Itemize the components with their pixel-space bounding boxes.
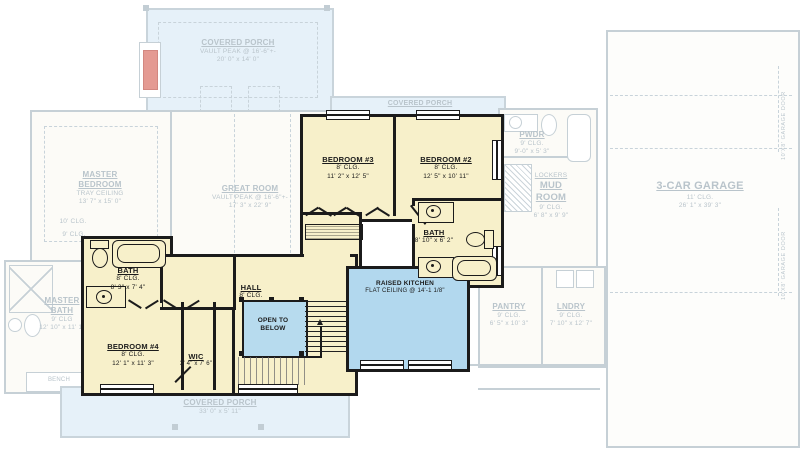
- bath-left-name: BATH: [94, 266, 162, 275]
- mud-name: MUD: [512, 180, 590, 192]
- railing-post: [299, 297, 304, 302]
- master-bedroom-label: MASTER BEDROOM TRAY CEILING 13' 7" x 15'…: [40, 170, 160, 206]
- fireplace-icon: [143, 50, 158, 90]
- bedroom3-ceiling: 8' CLG.: [300, 164, 396, 172]
- toilet-icon: [92, 248, 108, 268]
- bath-right-dims: 8' 10" x 6' 2": [402, 237, 466, 245]
- wic-dims: 3' 4" x 7' 6": [166, 361, 226, 369]
- pantry-ceiling: 9' CLG.: [478, 312, 540, 320]
- washer-icon: [556, 270, 574, 288]
- lockers-name: LOCKERS: [512, 172, 590, 180]
- kitchen-label: RAISED KITCHEN FLAT CEILING @ 14'-1 1/8": [348, 280, 462, 296]
- garage-ceiling: 11' CLG.: [620, 194, 780, 202]
- window: [408, 360, 452, 370]
- faded-wall: [498, 156, 568, 158]
- room-name: ROOM: [512, 192, 590, 204]
- bedroom2-door-icon: [366, 202, 390, 215]
- mud-dims: 6' 8" x 9' 9": [512, 212, 590, 220]
- bedroom3-label: BEDROOM #3 8' CLG. 11' 2" x 12' 5": [300, 155, 396, 181]
- garage-door-label: 10'X8' GARAGE DOOR: [781, 70, 787, 160]
- porch-bottom-label: COVERED PORCH 33' 0" x 5' 11": [120, 398, 320, 416]
- porch-top-name: COVERED PORCH: [157, 38, 319, 48]
- master-bedroom-ceiling: TRAY CEILING: [40, 190, 160, 198]
- porch-post: [143, 5, 149, 11]
- wic-label: WIC 3' 4" x 7' 6": [166, 352, 226, 369]
- window: [100, 384, 154, 394]
- open-below-line2: BELOW: [242, 325, 304, 333]
- tub-icon-faded: [567, 114, 591, 162]
- bath-right-name: BATH: [402, 228, 466, 237]
- garage-door-dash: [778, 66, 779, 152]
- faucet-dot: [431, 264, 434, 267]
- hall-ceiling: 8' CLG.: [222, 292, 280, 300]
- laundry-dims: 7' 10" x 12' 7": [539, 320, 603, 328]
- mud-ceiling: 9' CLG.: [512, 204, 590, 212]
- closet-door-icon: [334, 202, 360, 215]
- patio-step-line: [478, 388, 600, 390]
- railing-post: [239, 351, 244, 356]
- pwdr-dims: 9'-0" x 5' 3": [500, 148, 564, 156]
- porch-post: [258, 424, 264, 430]
- stair-treads-below-dashed: [238, 357, 306, 385]
- stair-direction-line: [320, 326, 322, 358]
- toilet-tank: [484, 230, 494, 249]
- wic-name: WIC: [166, 352, 226, 361]
- bath-left-ceiling: 8' CLG.: [94, 275, 162, 283]
- garage-dims: 26' 1" x 39' 3": [620, 202, 780, 210]
- patio-step-line: [460, 364, 618, 366]
- garage-name: 3-CAR GARAGE: [620, 180, 780, 194]
- bedroom2-dims: 12' 5" x 10' 11": [395, 173, 497, 181]
- pwdr-name: PWDR: [500, 130, 564, 140]
- window: [360, 360, 404, 370]
- pantry-dims: 6' 5" x 10' 3": [478, 320, 540, 328]
- bath-right-label: BATH 8' 10" x 6' 2": [402, 228, 466, 246]
- opening-patch: [304, 252, 350, 278]
- stair-treads: [305, 301, 347, 353]
- stair-direction-line: [286, 356, 321, 358]
- window: [326, 110, 370, 120]
- tub-inner: [457, 260, 491, 276]
- wic-hall-wall: [213, 302, 216, 390]
- tub-inner: [117, 244, 160, 263]
- porch-furniture-dashed: [200, 86, 232, 112]
- hall-label: HALL 8' CLG.: [222, 283, 280, 301]
- hall-name: HALL: [222, 283, 280, 292]
- open-below-line1: OPEN TO: [242, 317, 304, 325]
- faucet-dot: [431, 209, 434, 212]
- garage-dash-line: [610, 292, 792, 293]
- bed4-wic-wall: [181, 302, 184, 390]
- window: [238, 384, 298, 394]
- porch-bottom-name: COVERED PORCH: [120, 398, 320, 408]
- bedroom3-name: BEDROOM #3: [300, 155, 396, 164]
- laundry-label: LNDRY 9' CLG. 7' 10" x 12' 7": [539, 302, 603, 328]
- porch-top-dims: 20' 0" x 14' 0": [157, 56, 319, 64]
- pwdr-sink-icon: [509, 116, 522, 129]
- pwdr-ceiling: 9' CLG.: [500, 140, 564, 148]
- bath-left-dims: 8' 3" x 7' 4": [94, 284, 162, 292]
- garage-dash-line: [610, 95, 792, 96]
- porch-post: [172, 424, 178, 430]
- closet-shelf: [305, 224, 363, 240]
- garage-dash-line: [610, 148, 792, 149]
- corridor-door-icon: [163, 301, 199, 314]
- bedroom2-label: BEDROOM #2 8' CLG. 12' 5" x 10' 11": [395, 155, 497, 181]
- bedroom3-dims: 11' 2" x 12' 5": [300, 173, 396, 181]
- garage-label: 3-CAR GARAGE 11' CLG. 26' 1" x 39' 3": [620, 180, 780, 210]
- bedroom2-ceiling: 8' CLG.: [395, 164, 497, 172]
- toilet-icon: [466, 232, 485, 247]
- pantry-label: PANTRY 9' CLG. 6' 5" x 10' 3": [478, 302, 540, 328]
- master-bedroom-name2: BEDROOM: [40, 180, 160, 190]
- porch-mid-name: COVERED PORCH: [350, 100, 490, 109]
- pwdr-label: PWDR 9' CLG. 9'-0" x 5' 3": [500, 130, 564, 156]
- garage-door-dash: [778, 208, 779, 296]
- bath-left-label: BATH 8' CLG. 8' 3" x 7' 4": [94, 266, 162, 292]
- laundry-ceiling: 9' CLG.: [539, 312, 603, 320]
- mud-room-label: LOCKERS MUD ROOM 9' CLG. 6' 8" x 9' 9": [512, 172, 590, 220]
- closet-door-icon: [306, 202, 332, 215]
- porch-top-ceiling: VAULT PEAK @ 16'-6"+-: [157, 48, 319, 56]
- garage-door-label: 10'X8' GARAGE DOOR: [781, 208, 787, 300]
- bedroom2-name: BEDROOM #2: [395, 155, 497, 164]
- open-to-below-label: OPEN TO BELOW: [242, 317, 304, 333]
- window: [416, 110, 460, 120]
- floor-plan-canvas: COVERED PORCH VAULT PEAK @ 16'-6"+- 20' …: [0, 0, 800, 456]
- kitchen-ceiling: FLAT CEILING @ 14'-1 1/8": [348, 288, 462, 296]
- bedroom4-door-icon: [128, 301, 158, 314]
- porch-post: [324, 5, 330, 11]
- porch-furniture-dashed: [248, 86, 280, 112]
- faucet-dot: [102, 295, 105, 298]
- clg-note-10-text: 10' CLG.: [48, 218, 98, 226]
- master-bedroom-dims: 13' 7" x 15' 0": [40, 198, 160, 206]
- laundry-name: LNDRY: [539, 302, 603, 312]
- clg-note-10: 10' CLG.: [48, 218, 98, 226]
- pantry-name: PANTRY: [478, 302, 540, 312]
- stair-arrow-icon: [317, 319, 323, 325]
- porch-bottom-dims: 33' 0" x 5' 11": [120, 408, 320, 416]
- porch-mid-label: COVERED PORCH: [350, 100, 490, 109]
- porch-top-label: COVERED PORCH VAULT PEAK @ 16'-6"+- 20' …: [157, 38, 319, 64]
- kitchen-name: RAISED KITCHEN: [348, 280, 462, 288]
- dryer-icon: [576, 270, 594, 288]
- bedroom4-name: BEDROOM #4: [86, 342, 180, 351]
- master-bedroom-name1: MASTER: [40, 170, 160, 180]
- garage-outline: [606, 30, 800, 448]
